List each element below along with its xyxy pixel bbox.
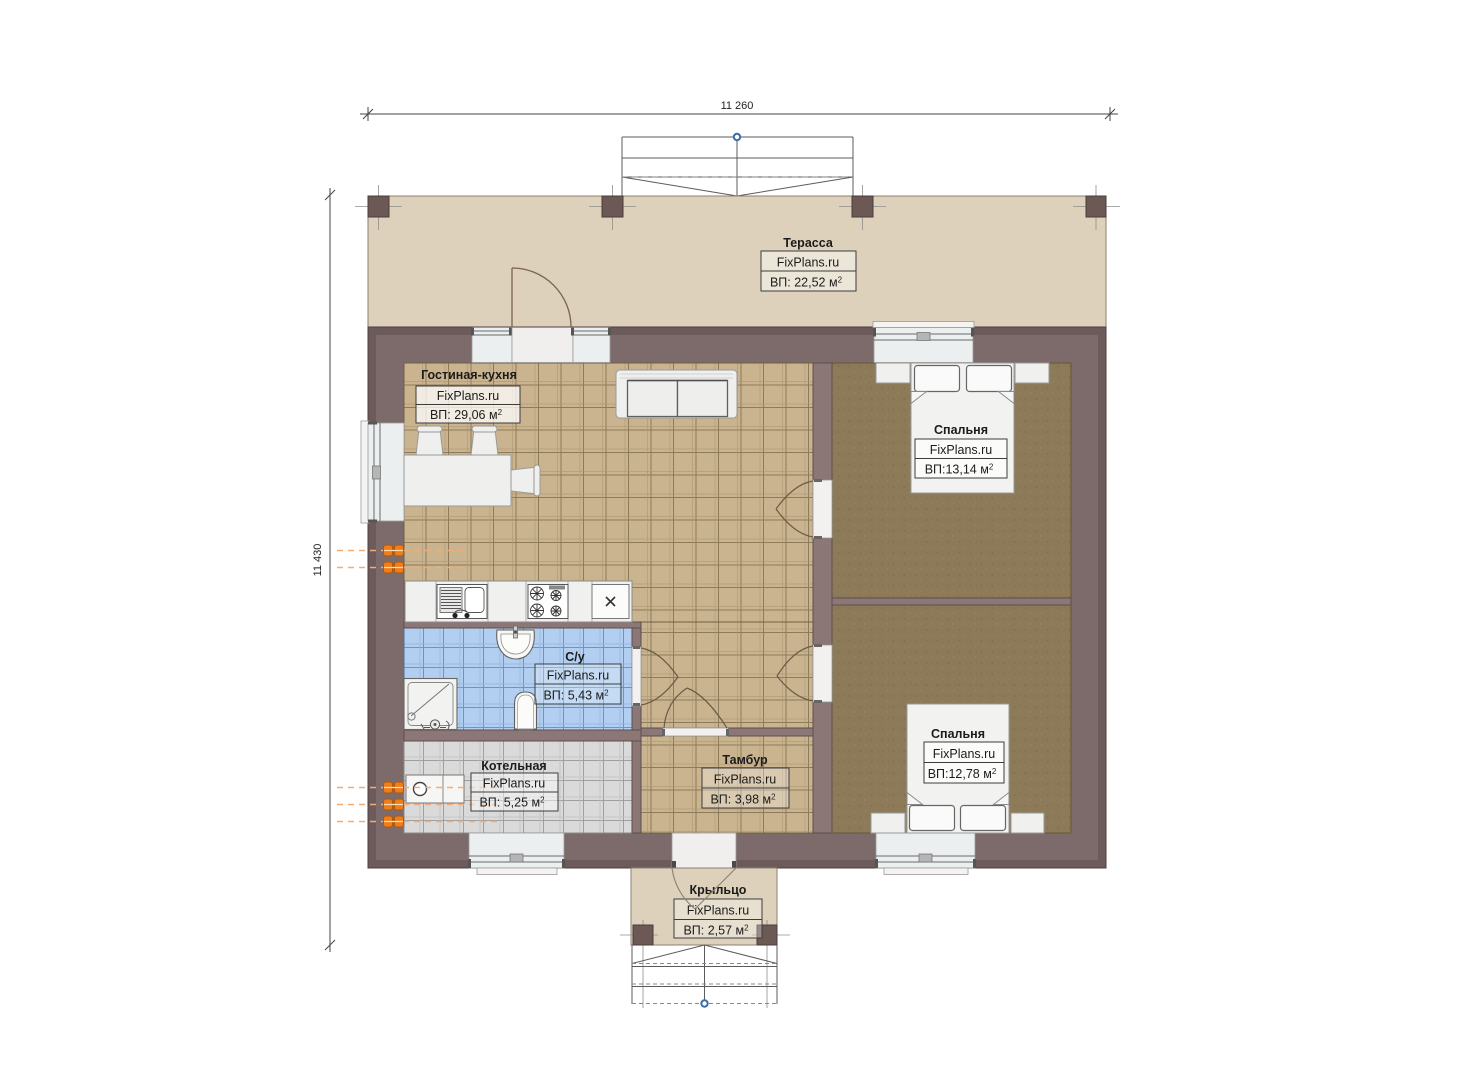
svg-text:FixPlans.ru: FixPlans.ru <box>687 904 750 918</box>
svg-text:ВП: 5,43 м2: ВП: 5,43 м2 <box>543 689 609 703</box>
svg-text:11 430: 11 430 <box>312 544 324 577</box>
svg-text:FixPlans.ru: FixPlans.ru <box>777 256 840 270</box>
svg-text:ВП: 3,98 м2: ВП: 3,98 м2 <box>710 793 776 807</box>
svg-text:ВП: 5,25 м2: ВП: 5,25 м2 <box>479 796 545 810</box>
svg-text:FixPlans.ru: FixPlans.ru <box>437 389 500 403</box>
svg-text:Спальня: Спальня <box>934 423 988 437</box>
svg-text:ВП: 2,57 м2: ВП: 2,57 м2 <box>683 924 749 938</box>
svg-text:Тамбур: Тамбур <box>722 753 768 767</box>
svg-text:FixPlans.ru: FixPlans.ru <box>714 773 777 787</box>
svg-text:FixPlans.ru: FixPlans.ru <box>547 669 610 683</box>
svg-text:11 260: 11 260 <box>721 100 754 112</box>
svg-text:ВП: 29,06 м2: ВП: 29,06 м2 <box>430 408 503 422</box>
svg-text:Спальня: Спальня <box>931 727 985 741</box>
svg-text:С/у: С/у <box>565 650 585 664</box>
svg-text:FixPlans.ru: FixPlans.ru <box>933 747 996 761</box>
svg-text:FixPlans.ru: FixPlans.ru <box>483 777 546 791</box>
svg-text:ВП:12,78 м2: ВП:12,78 м2 <box>928 767 997 781</box>
svg-text:FixPlans.ru: FixPlans.ru <box>930 443 993 457</box>
svg-text:Котельная: Котельная <box>481 759 546 773</box>
svg-text:Терасса: Терасса <box>783 236 834 250</box>
svg-text:ВП:13,14 м2: ВП:13,14 м2 <box>925 463 994 477</box>
svg-text:Гостиная-кухня: Гостиная-кухня <box>421 368 517 382</box>
svg-text:ВП: 22,52 м2: ВП: 22,52 м2 <box>770 276 843 290</box>
